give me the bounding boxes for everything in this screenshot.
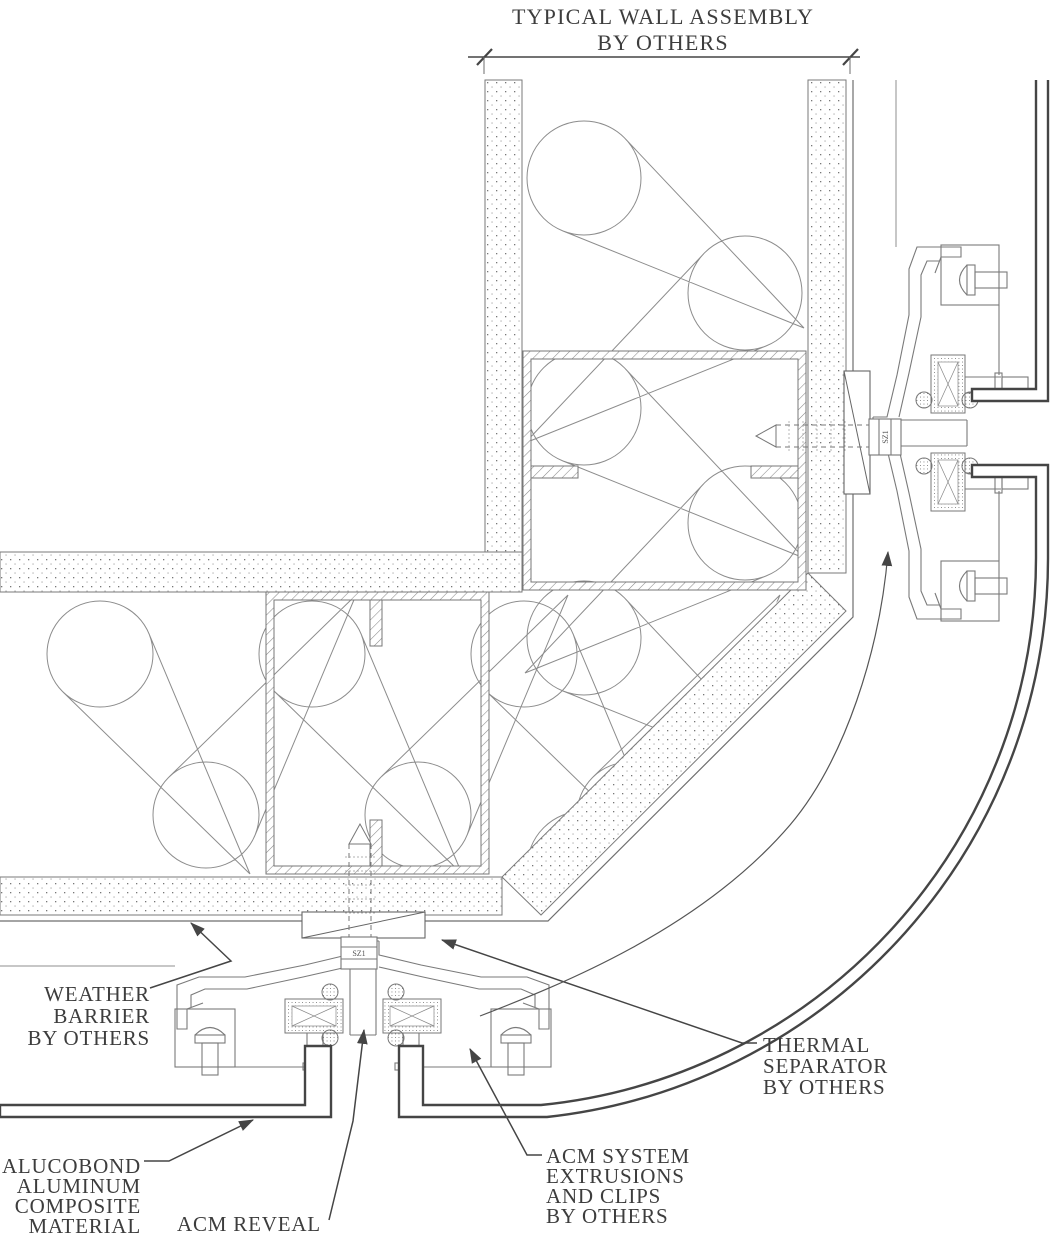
- acm-panel-top-right: [972, 80, 1048, 401]
- joint-assembly-bottom: [175, 824, 551, 1096]
- callout-alucobond-line: MATERIAL: [28, 1214, 141, 1238]
- title-line: TYPICAL WALL ASSEMBLY: [512, 4, 814, 29]
- stud-flange-tab: [751, 466, 798, 478]
- title-line: BY OTHERS: [597, 30, 729, 55]
- joint-assembly-right: [756, 245, 1028, 621]
- leader-acm-system: [470, 1049, 542, 1155]
- stud-flange-tab: [370, 600, 382, 646]
- wall-section-drawing: SZ1: [0, 0, 1055, 1245]
- leader-acm-reveal: [329, 1030, 364, 1220]
- gypsum-band-horizontal: [0, 552, 522, 592]
- wall-layers: [0, 80, 853, 921]
- acm-panels: [0, 80, 1048, 1117]
- callout-thermal-separator-line: BY OTHERS: [763, 1075, 886, 1099]
- sheathing-band-horizontal: [0, 877, 502, 915]
- dimension-extensions: [484, 57, 850, 74]
- steel-stud-box-horizontal: [266, 592, 489, 874]
- callout-acm-system-line: BY OTHERS: [546, 1204, 669, 1228]
- callout-weather-barrier-line: BY OTHERS: [27, 1026, 150, 1050]
- leader-alucobond: [144, 1120, 253, 1161]
- weather-barrier-line: [0, 80, 853, 921]
- sheathing-band-vertical: [808, 80, 846, 573]
- callout-acm-reveal: ACM REVEAL: [177, 1212, 321, 1236]
- leader-thermal-separator: [442, 940, 757, 1043]
- callout-weather-barrier-line: BARRIER: [53, 1004, 150, 1028]
- stud-flange-tab: [370, 820, 382, 866]
- gypsum-band-vertical: [485, 80, 522, 552]
- stud-flange-tab: [531, 466, 578, 478]
- wall-section-detail-sheet: SZ1: [0, 0, 1055, 1245]
- callout-weather-barrier-line: WEATHER: [44, 982, 150, 1006]
- acm-panel-bottom-left: [0, 1046, 331, 1117]
- leader-weather-barrier: [150, 923, 231, 988]
- sheathing-band-chamfer: [502, 573, 846, 915]
